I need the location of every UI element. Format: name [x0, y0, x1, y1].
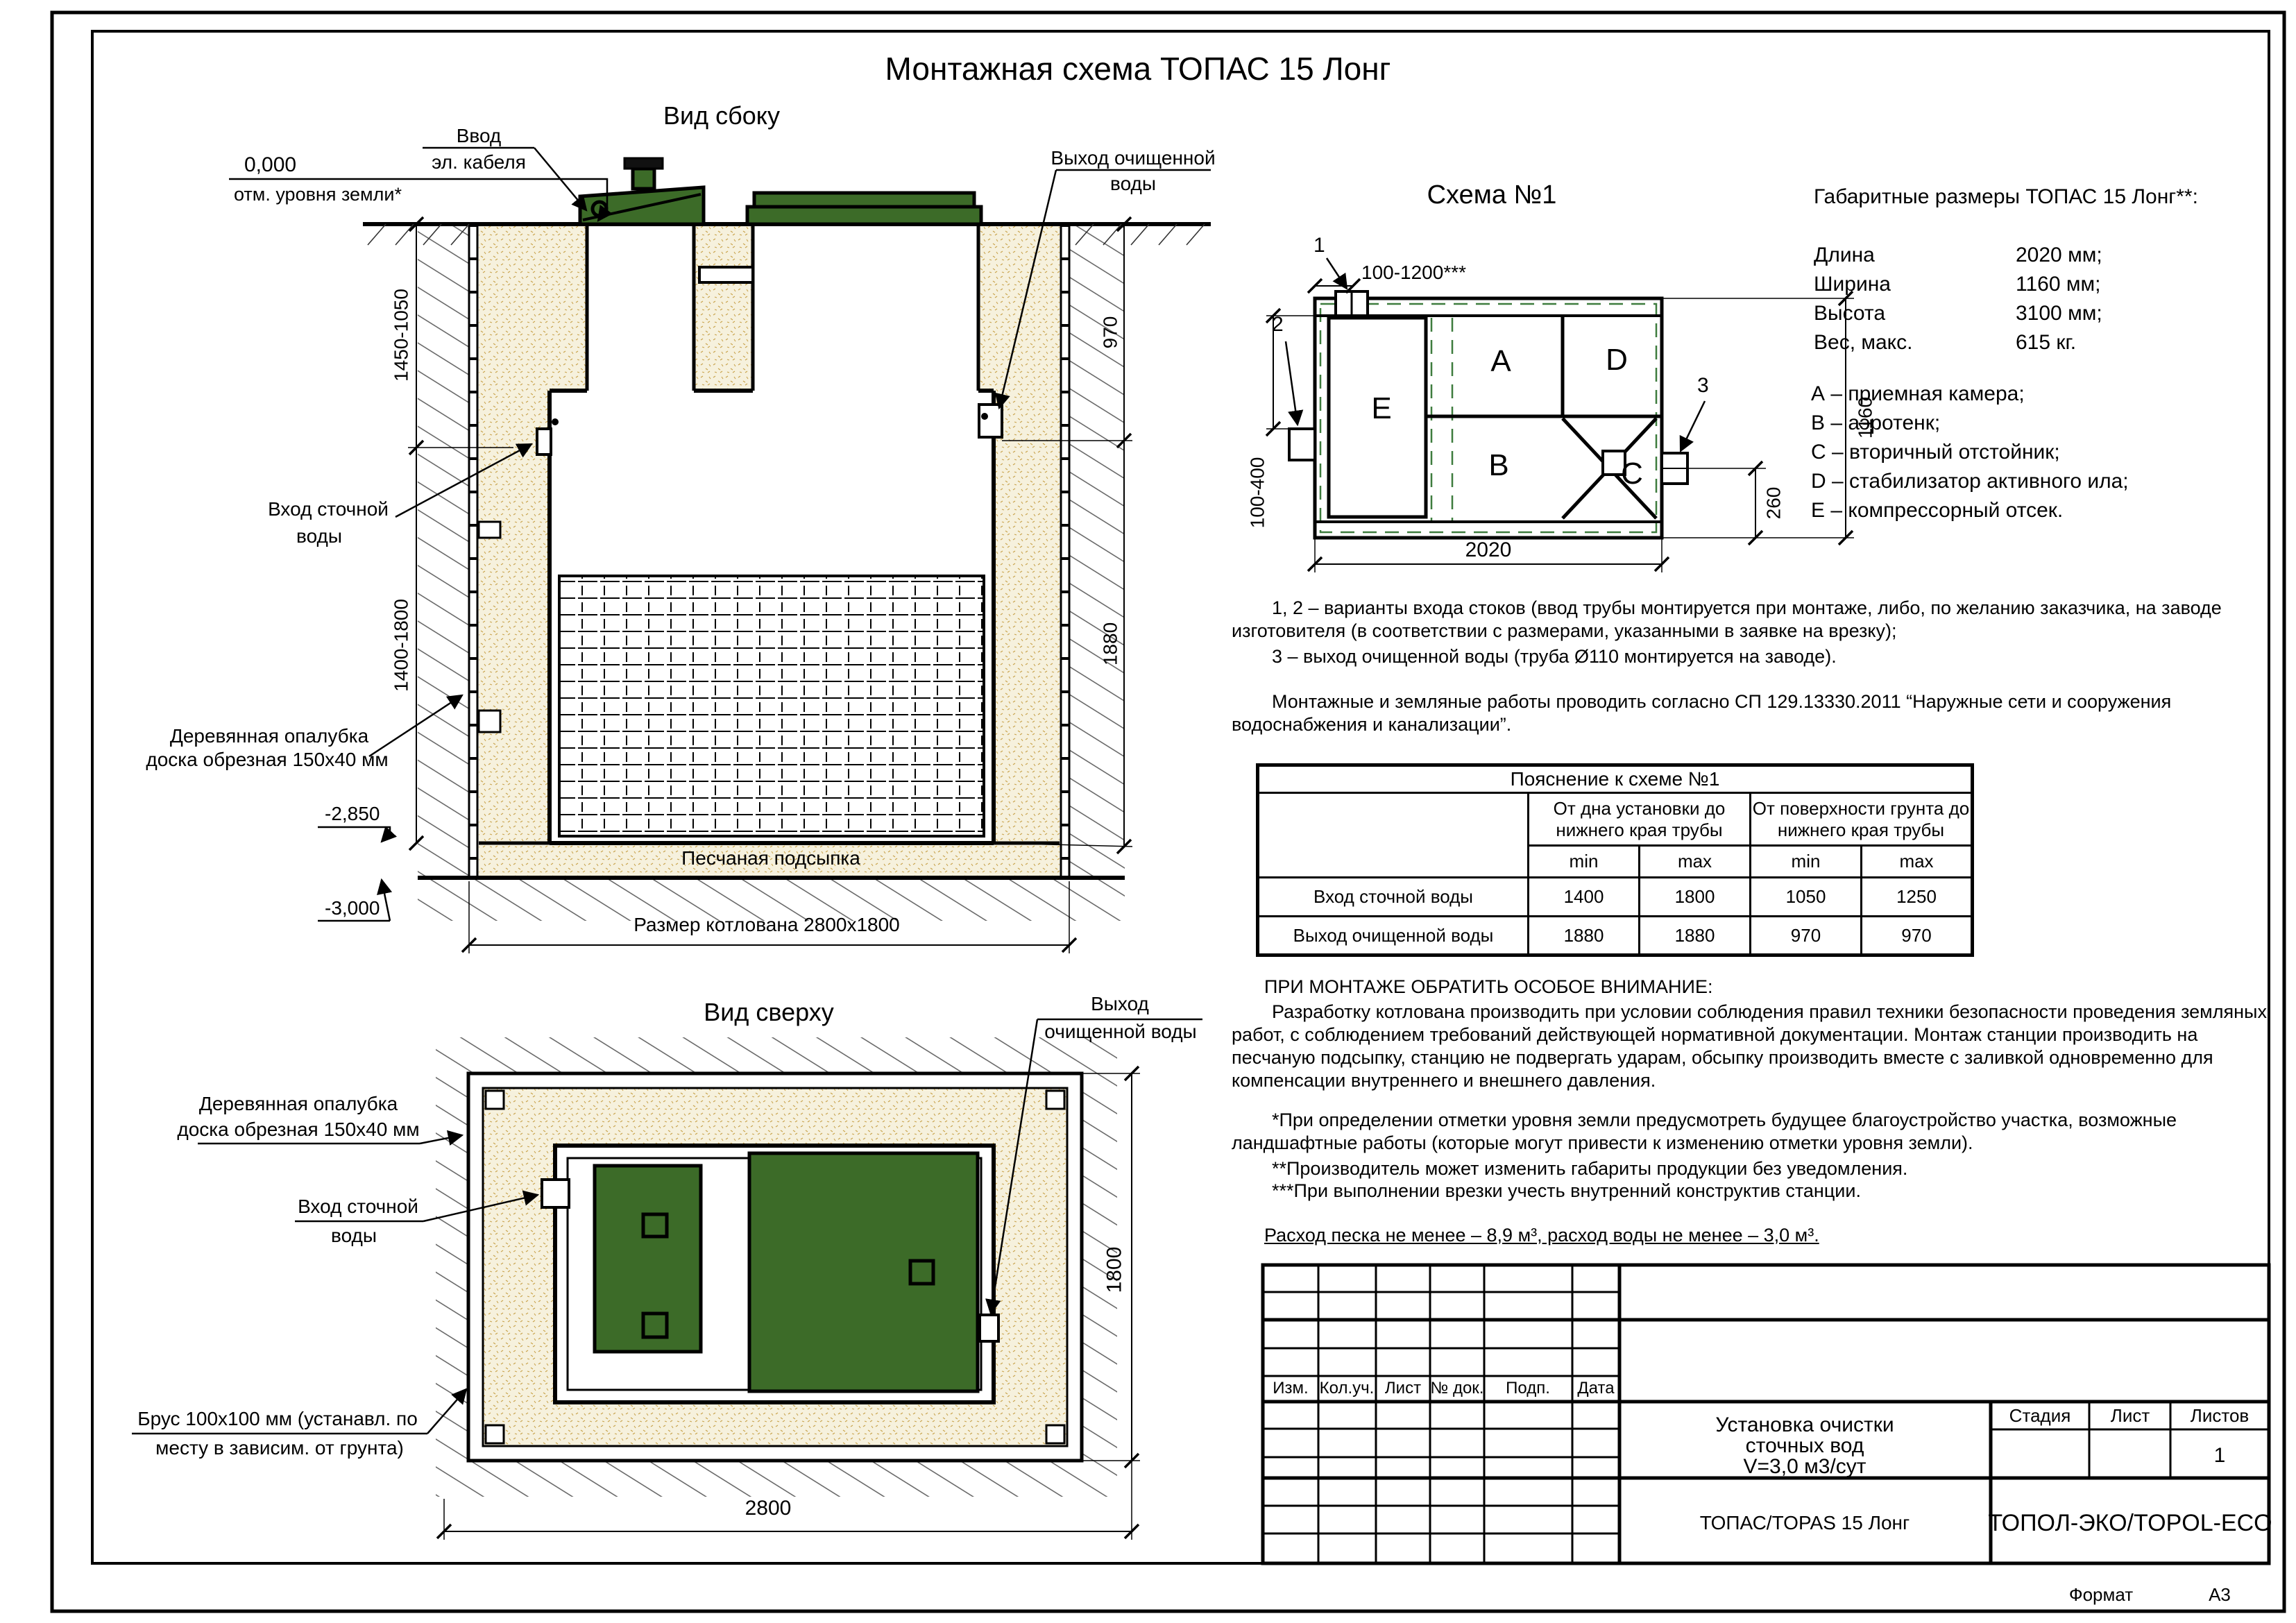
tv-outlet-label-2: очищенной воды	[1044, 1021, 1196, 1042]
compartment-a: A	[1490, 346, 1511, 377]
tb-doc-title-3: V=3,0 м3/сут	[1744, 1456, 1866, 1478]
table-cell: 1250	[1862, 878, 1973, 917]
tb-doc-title-2: сточных вод	[1746, 1435, 1864, 1457]
dim-left-top: 1450-1050	[391, 289, 411, 382]
tb-sheet-header: Лист	[2111, 1407, 2150, 1425]
tb-sheets-header: Листов	[2191, 1407, 2249, 1425]
schema-title: Схема №1	[1427, 182, 1557, 210]
table-group1: От дна установки до нижнего края трубы	[1529, 793, 1751, 846]
tv-formwork-label: Деревянная опалубка	[199, 1094, 398, 1114]
tb-rev-list: Лист	[1385, 1379, 1421, 1397]
tb-product: ТОПАС/TOPAS 15 Лонг	[1700, 1513, 1910, 1533]
sand-bed-label: Песчаная подсыпка	[681, 848, 860, 868]
tv-outlet-label: Выход	[1091, 994, 1149, 1014]
table-max: max	[1640, 846, 1751, 878]
format-value: А3	[2209, 1586, 2231, 1604]
inlet-label: Вход сточной	[268, 499, 389, 519]
schema-dim-top: 100-1200***	[1361, 262, 1466, 282]
pit-size-label: Размер котлована 2800х1800	[633, 915, 900, 935]
dim-right-top: 970	[1100, 316, 1120, 349]
table-cell: 970	[1751, 917, 1862, 955]
attention-fn2: **Производитель может изменить габариты …	[1232, 1157, 2272, 1180]
cable-entry-label: Ввод	[457, 126, 502, 146]
note-outlet: 3 – выход очищенной воды (труба Ø110 мон…	[1232, 645, 2269, 668]
dims-row-label: Ширина	[1814, 273, 1891, 296]
tv-formwork-label-2: доска обрезная 150х40 мм	[177, 1119, 419, 1139]
attention-fn1: *При определении отметки уровня земли пр…	[1232, 1109, 2272, 1155]
attention-title: ПРИ МОНТАЖЕ ОБРАТИТЬ ОСОБОЕ ВНИМАНИЕ:	[1264, 977, 1712, 996]
legend-item: D – стабилизатор активного ила;	[1811, 470, 2129, 493]
tb-rev-koluch: Кол.уч.	[1320, 1379, 1375, 1397]
dims-row-value: 2020 мм;	[2016, 244, 2102, 266]
dims-row-label: Высота	[1814, 303, 1885, 325]
tb-doc-title: Установка очистки	[1715, 1414, 1894, 1436]
top-view-title: Вид сверху	[704, 999, 834, 1026]
legend-item: В – аэротенк;	[1811, 412, 1940, 434]
table-cell: 1880	[1529, 917, 1640, 955]
table-cell: 1050	[1751, 878, 1862, 917]
tb-company: ТОПОЛ-ЭКО/TOPOL-ECO	[1988, 1511, 2272, 1536]
table-title: Пояснение к схеме №1	[1258, 765, 1973, 793]
dim-right-bottom: 1880	[1100, 622, 1120, 665]
datum-note: отм. уровня земли*	[234, 185, 402, 204]
tb-sheets-value: 1	[2214, 1445, 2226, 1467]
legend-item: А – приемная камера;	[1811, 383, 2025, 405]
table-corner	[1258, 793, 1529, 878]
tv-inlet-label-2: воды	[331, 1225, 377, 1246]
tv-brus-label: Брус 100х100 мм (устанавл. по	[137, 1409, 418, 1429]
drawing-sheet: Монтажная схема ТОПАС 15 Лонг Вид сбоку …	[0, 0, 2296, 1623]
dims-row-label: Длина	[1814, 244, 1875, 266]
table-group2: От поверхности грунта до нижнего края тр…	[1751, 793, 1973, 846]
dims-row-value: 615 кг.	[2016, 332, 2076, 354]
table-cell: 970	[1862, 917, 1973, 955]
tv-dim-width: 2800	[745, 1497, 792, 1520]
side-view-title: Вид сбоку	[663, 103, 780, 129]
dims-row-value: 1160 мм;	[2016, 273, 2100, 296]
page-title: Монтажная схема ТОПАС 15 Лонг	[885, 52, 1391, 85]
compartment-c: C	[1621, 458, 1643, 490]
format-label: Формат	[2069, 1586, 2133, 1604]
schema-marker-2: 2	[1272, 314, 1284, 336]
note-variants: 1, 2 – варианты входа стоков (ввод трубы…	[1232, 597, 2269, 643]
cable-entry-label-2: эл. кабеля	[432, 152, 526, 172]
manhole-lids	[580, 158, 981, 224]
schema-dim-outlet: 260	[1763, 487, 1783, 520]
datum-value: 0,000	[244, 154, 296, 176]
table-min: min	[1751, 846, 1862, 878]
table-max: max	[1862, 846, 1973, 878]
level-pit: -3,000	[325, 898, 380, 918]
explanation-table: Пояснение к схеме №1 От дна установки до…	[1256, 763, 1974, 957]
outlet-label: Выход очищенной	[1051, 148, 1215, 168]
legend-item: С – вторичный отстойник;	[1811, 441, 2060, 464]
dims-title: Габаритные размеры ТОПАС 15 Лонг**:	[1814, 186, 2198, 208]
schema-dim-left: 100-400	[1247, 457, 1267, 529]
side-view-drawing	[229, 148, 1211, 953]
formwork-label-2: доска обрезная 150х40 мм	[146, 749, 388, 770]
schema-dim-bottom: 2020	[1465, 539, 1512, 561]
attention-fn3: ***При выполнении врезки учесть внутренн…	[1232, 1180, 2272, 1203]
compartment-b: B	[1488, 450, 1508, 482]
dims-row-label: Вес, макс.	[1814, 332, 1912, 354]
schema-marker-1: 1	[1313, 235, 1325, 257]
table-row-name: Вход сточной воды	[1258, 878, 1529, 917]
tb-rev-ndok: № док.	[1431, 1379, 1484, 1397]
inlet-label-2: воды	[296, 526, 342, 546]
dim-left-bottom: 1400-1800	[391, 599, 411, 692]
note-sp: Монтажные и земляные работы проводить со…	[1232, 690, 2269, 736]
table-cell: 1400	[1529, 878, 1640, 917]
compartment-e: E	[1371, 393, 1391, 425]
table-cell: 1800	[1640, 878, 1751, 917]
formwork-label: Деревянная опалубка	[170, 726, 368, 746]
legend-item: Е – компрессорный отсек.	[1811, 500, 2063, 522]
outlet-label-2: воды	[1110, 173, 1156, 194]
tv-brus-label-2: месту в зависим. от грунта)	[155, 1438, 404, 1458]
dims-row-value: 3100 мм;	[2016, 303, 2102, 325]
compartment-d: D	[1606, 344, 1628, 376]
table-min: min	[1529, 846, 1640, 878]
tb-rev-podp: Подп.	[1506, 1379, 1550, 1397]
table-row-name: Выход очищенной воды	[1258, 917, 1529, 955]
schema1-drawing	[1266, 258, 1854, 572]
tb-rev-izm: Изм.	[1273, 1379, 1308, 1397]
tb-stage-header: Стадия	[2009, 1407, 2071, 1425]
table-cell: 1880	[1640, 917, 1751, 955]
attention-consumption: Расход песка не менее – 8,9 м³, расход в…	[1264, 1225, 1819, 1245]
tb-rev-data: Дата	[1577, 1379, 1614, 1397]
tv-inlet-label: Вход сточной	[298, 1196, 418, 1216]
schema-marker-3: 3	[1697, 375, 1709, 397]
level-base: -2,850	[325, 804, 380, 824]
tv-dim-height: 1800	[1103, 1247, 1125, 1293]
attention-p1: Разработку котлована производить при усл…	[1232, 1001, 2281, 1092]
